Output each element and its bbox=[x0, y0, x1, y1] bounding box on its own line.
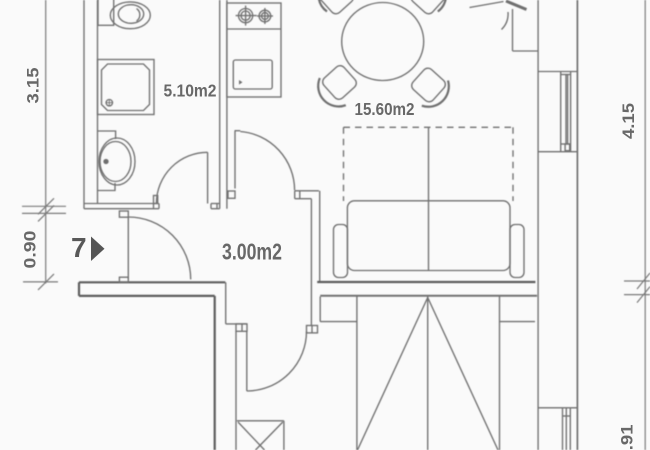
svg-text:0.90: 0.90 bbox=[20, 231, 39, 269]
svg-text:3.00m2: 3.00m2 bbox=[222, 239, 282, 265]
svg-text:6.91: 6.91 bbox=[617, 425, 636, 450]
svg-text:15.60m2: 15.60m2 bbox=[355, 99, 415, 119]
svg-text:7: 7 bbox=[71, 232, 87, 263]
svg-text:3.15: 3.15 bbox=[23, 68, 42, 104]
svg-text:4.15: 4.15 bbox=[619, 103, 638, 139]
svg-text:5.10m2: 5.10m2 bbox=[164, 81, 217, 101]
